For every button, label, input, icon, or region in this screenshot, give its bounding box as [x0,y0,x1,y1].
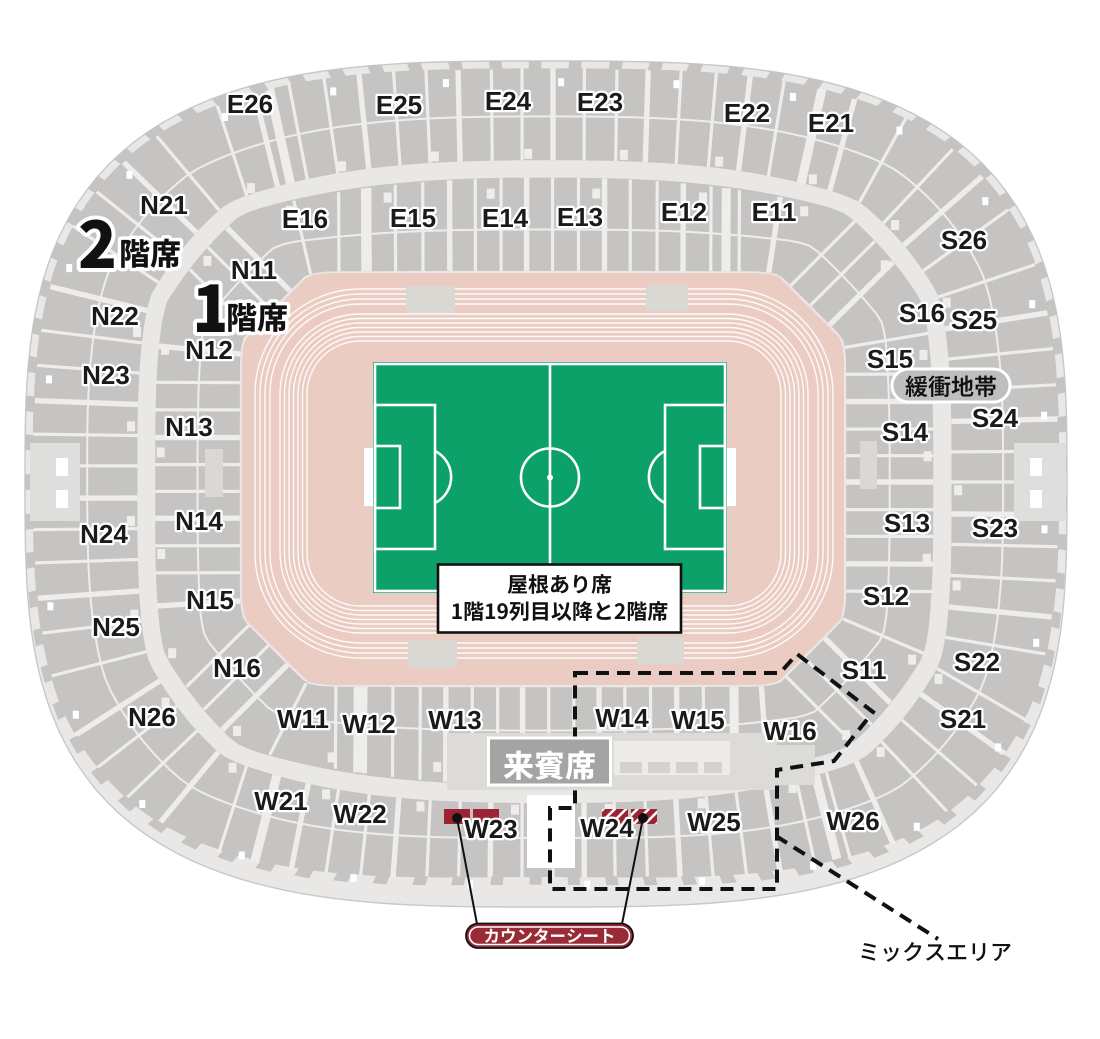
svg-text:W23: W23 [464,814,517,844]
svg-text:S26: S26 [941,225,987,255]
svg-text:W25: W25 [687,807,740,837]
svg-text:W16: W16 [763,716,816,746]
svg-text:E15: E15 [390,203,436,233]
svg-text:S16: S16 [899,298,945,328]
svg-text:E25: E25 [376,90,422,120]
svg-text:N25: N25 [92,612,140,642]
svg-text:N11: N11 [231,255,277,285]
svg-text:N24: N24 [80,519,128,549]
svg-text:S25: S25 [951,305,997,335]
svg-text:E24: E24 [485,86,532,116]
svg-text:W11: W11 [277,704,329,734]
svg-text:N22: N22 [91,301,139,331]
svg-text:W24: W24 [580,813,634,843]
svg-text:N23: N23 [82,360,130,390]
svg-text:W21: W21 [254,786,307,816]
svg-text:W26: W26 [826,806,879,836]
svg-text:S24: S24 [972,403,1019,433]
svg-text:E16: E16 [282,204,328,234]
svg-text:S12: S12 [863,581,909,611]
svg-text:S14: S14 [882,417,929,447]
svg-text:N13: N13 [165,412,213,442]
svg-text:E23: E23 [577,87,623,117]
svg-text:E12: E12 [661,197,707,227]
svg-text:E14: E14 [482,203,529,233]
svg-text:N21: N21 [140,190,188,220]
svg-text:S21: S21 [940,704,986,734]
svg-text:N16: N16 [213,653,261,683]
svg-text:E13: E13 [557,202,603,232]
svg-text:S13: S13 [884,508,930,538]
svg-text:N14: N14 [175,506,223,536]
svg-text:E21: E21 [808,108,854,138]
svg-text:W13: W13 [428,705,481,735]
svg-text:W22: W22 [333,799,386,829]
svg-text:E22: E22 [724,98,770,128]
svg-text:S11: S11 [842,655,887,685]
svg-text:S23: S23 [972,513,1018,543]
svg-text:W15: W15 [671,705,724,735]
svg-text:E11: E11 [752,197,797,227]
svg-text:W12: W12 [342,709,395,739]
svg-text:N15: N15 [186,585,234,615]
svg-text:N26: N26 [128,702,176,732]
svg-text:N12: N12 [185,335,233,365]
svg-text:S22: S22 [954,647,1000,677]
svg-text:E26: E26 [227,89,273,119]
svg-text:W14: W14 [595,703,649,733]
